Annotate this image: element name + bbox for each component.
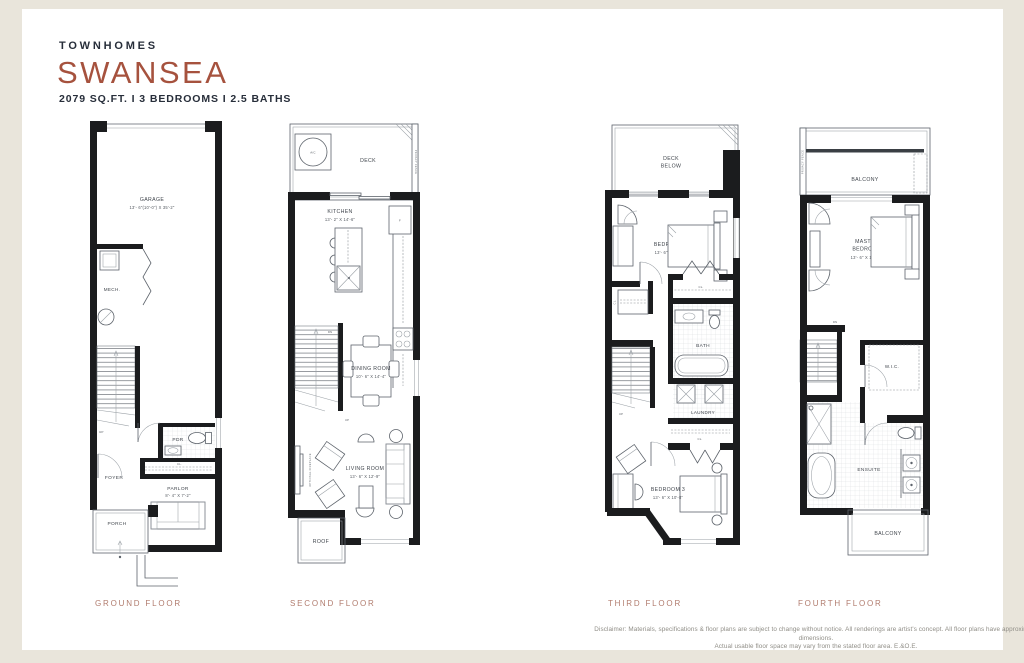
deck-below-label2: BELOW — [661, 164, 682, 170]
stairs-dn-label: DN — [833, 320, 837, 324]
porch-label: PORCH — [107, 521, 126, 527]
privacy-fence-label: PRIVACY FENCE — [801, 150, 805, 175]
ac-label: A/C — [310, 151, 315, 155]
mech-label: MECH. — [104, 287, 121, 292]
laundry — [668, 384, 733, 424]
bedroom3-label: BEDROOM 3 — [651, 487, 685, 493]
bedroom2-furniture — [613, 205, 727, 281]
fourth-floor-plan-drawing: PRIVACY FENCE BALCONY MASTER BEDROOM 13'… — [795, 118, 935, 595]
deck-label: DECK — [360, 158, 376, 164]
balcony-bottom — [800, 508, 930, 555]
stairs-up-label: UP — [345, 418, 349, 422]
ground-floor-caption: GROUND FLOOR — [95, 599, 182, 608]
second-floor-caption: SECOND FLOOR — [290, 599, 376, 608]
stairs — [605, 340, 655, 408]
closet-label: CL. — [177, 462, 182, 466]
collection-title: TOWNHOMES — [59, 40, 158, 52]
balcony-top — [800, 128, 930, 195]
parlor-label: PARLOR — [167, 486, 189, 492]
entry-steps — [137, 555, 178, 586]
foyer-label: FOYER — [105, 475, 123, 481]
ensuite-label: ENSUITE — [857, 467, 880, 473]
balcony-top-label: BALCONY — [851, 177, 878, 183]
stairs — [295, 323, 343, 411]
porch — [93, 510, 148, 558]
dining-label: DINING ROOM — [351, 366, 391, 372]
stairs-up-label: UP — [619, 412, 623, 416]
model-name: SWANSEA — [57, 55, 228, 91]
stairs-dn-label: DN — [328, 330, 332, 334]
optional-fireplace — [295, 446, 303, 494]
wic-label: W.I.C. — [885, 364, 899, 369]
side-closet-label: CL. — [613, 300, 617, 305]
ground-walls — [90, 121, 222, 552]
garage-label: GARAGE — [140, 197, 164, 203]
parlor-sofa — [151, 502, 205, 529]
bath-label: BATH — [696, 343, 710, 349]
optional-fireplace-label: OPTIONAL FIREPLACE — [308, 453, 312, 487]
third-lower-walls — [607, 508, 740, 545]
pdr-label: PDR — [172, 437, 183, 443]
disclaimer-line2: Actual usable floor space may vary from … — [586, 643, 1024, 652]
kitchen-dims: 13'- 2" X 14'-6" — [325, 217, 356, 222]
laundry-label: LAUNDRY — [691, 410, 715, 415]
stairs-up-label: UP — [99, 430, 104, 434]
linen-closet — [668, 430, 733, 463]
second-floor-plan-drawing: PRIVACY FENCE A/C DECK KITCHEN 13'- 2" X… — [283, 118, 428, 595]
deck-below-label1: DECK — [663, 156, 679, 162]
third-hall — [612, 262, 662, 314]
stairs-up — [97, 346, 140, 428]
garage-dims: 13'- 6"(10'-0") X 35'-2" — [130, 205, 175, 210]
privacy-fence-label: PRIVACY FENCE — [414, 150, 418, 175]
model-specs: 2079 SQ.FT. I 3 BEDROOMS I 2.5 BATHS — [59, 93, 291, 105]
third-floor-plan-drawing: DECK BELOW BEDROOM 2 13'- 6" X 10'-10" — [605, 118, 750, 595]
balcony-bottom-label: BALCONY — [874, 531, 901, 537]
roof-label: ROOF — [313, 539, 329, 545]
dining-dims: 10'- 6" X 14'-4" — [356, 374, 387, 379]
living-dims: 13'- 6" X 12'-9" — [350, 474, 381, 479]
parlor-dims: 8'- 4" X 7'-2" — [165, 493, 191, 498]
fourth-floor-caption: FOURTH FLOOR — [798, 599, 883, 608]
kitchen-label: KITCHEN — [327, 209, 352, 215]
entry-door — [98, 454, 122, 478]
disclaimer-line1: Disclaimer: Materials, specifications & … — [586, 626, 1024, 643]
disclaimer: Disclaimer: Materials, specifications & … — [586, 626, 1024, 652]
living-label: LIVING ROOM — [346, 466, 384, 472]
hall-closet-label: CL. — [699, 285, 704, 289]
plan-sheet: TOWNHOMES SWANSEA 2079 SQ.FT. I 3 BEDROO… — [22, 9, 1003, 650]
bedroom3-dims: 13'- 6" X 10'-8" — [653, 495, 684, 500]
fridge-label: F — [399, 219, 401, 223]
third-floor-caption: THIRD FLOOR — [608, 599, 682, 608]
linen-closet-label: CL. — [698, 437, 703, 441]
ground-floor-plan-drawing: GARAGE 13'- 6"(10'-0") X 35'-2" MECH. UP… — [85, 118, 230, 595]
kitchen-island — [330, 228, 362, 292]
